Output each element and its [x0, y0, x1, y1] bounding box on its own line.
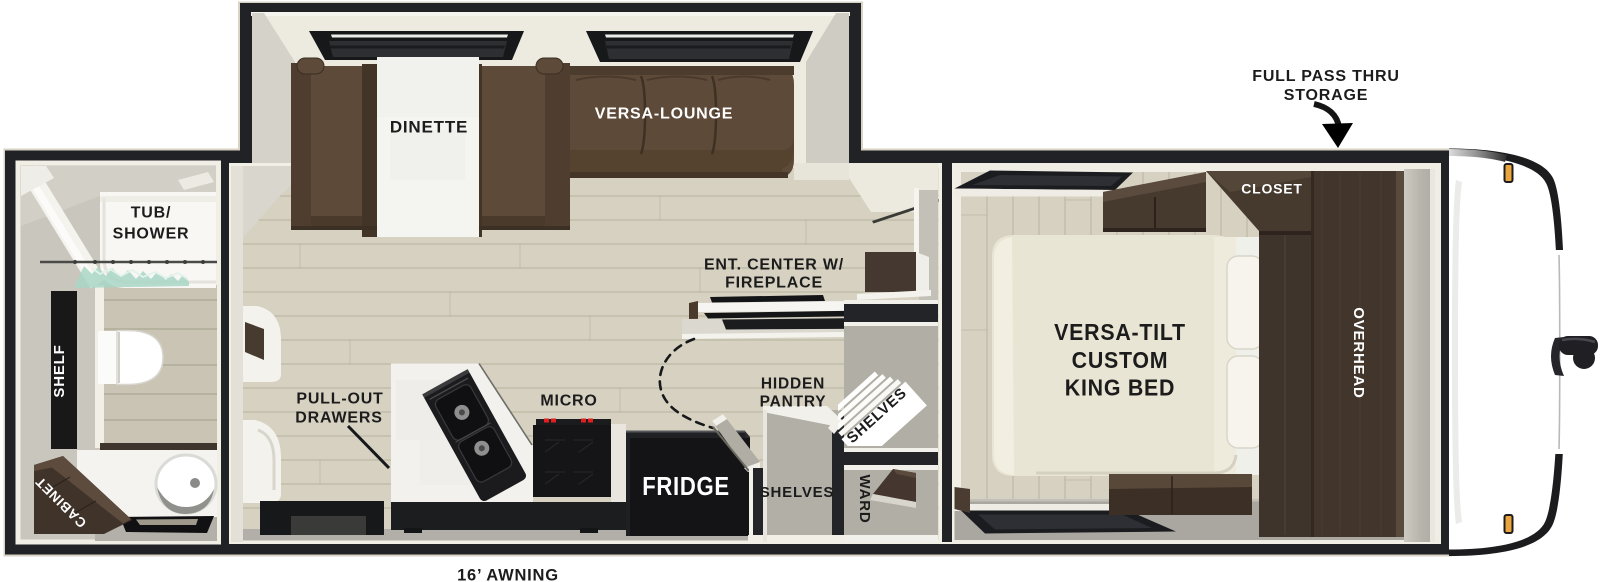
- svg-text:TUB/: TUB/: [131, 205, 172, 222]
- svg-text:VERSA-LOUNGE: VERSA-LOUNGE: [595, 106, 734, 123]
- svg-text:CUSTOM: CUSTOM: [1072, 347, 1169, 373]
- svg-text:WARD: WARD: [856, 474, 873, 523]
- svg-text:SHELVES: SHELVES: [760, 484, 835, 501]
- svg-text:HIDDEN: HIDDEN: [761, 376, 825, 393]
- svg-text:16’ AWNING: 16’ AWNING: [457, 567, 559, 582]
- svg-text:SHOWER: SHOWER: [113, 226, 190, 243]
- svg-text:MICRO: MICRO: [540, 393, 597, 410]
- svg-text:ENT. CENTER W/: ENT. CENTER W/: [704, 257, 844, 274]
- svg-text:PANTRY: PANTRY: [760, 394, 827, 411]
- svg-text:KING BED: KING BED: [1065, 375, 1175, 401]
- svg-text:PULL-OUT: PULL-OUT: [296, 391, 383, 408]
- svg-text:FULL PASS THRU: FULL PASS THRU: [1252, 68, 1400, 85]
- svg-text:CLOSET: CLOSET: [1241, 181, 1303, 197]
- svg-text:FIREPLACE: FIREPLACE: [725, 275, 823, 292]
- svg-text:STORAGE: STORAGE: [1284, 87, 1368, 104]
- svg-text:DINETTE: DINETTE: [390, 118, 468, 137]
- svg-text:OVERHEAD: OVERHEAD: [1350, 307, 1367, 398]
- svg-text:SHELF: SHELF: [51, 344, 68, 397]
- svg-text:DRAWERS: DRAWERS: [295, 410, 382, 427]
- svg-text:FRIDGE: FRIDGE: [642, 472, 730, 501]
- svg-text:VERSA-TILT: VERSA-TILT: [1054, 319, 1186, 345]
